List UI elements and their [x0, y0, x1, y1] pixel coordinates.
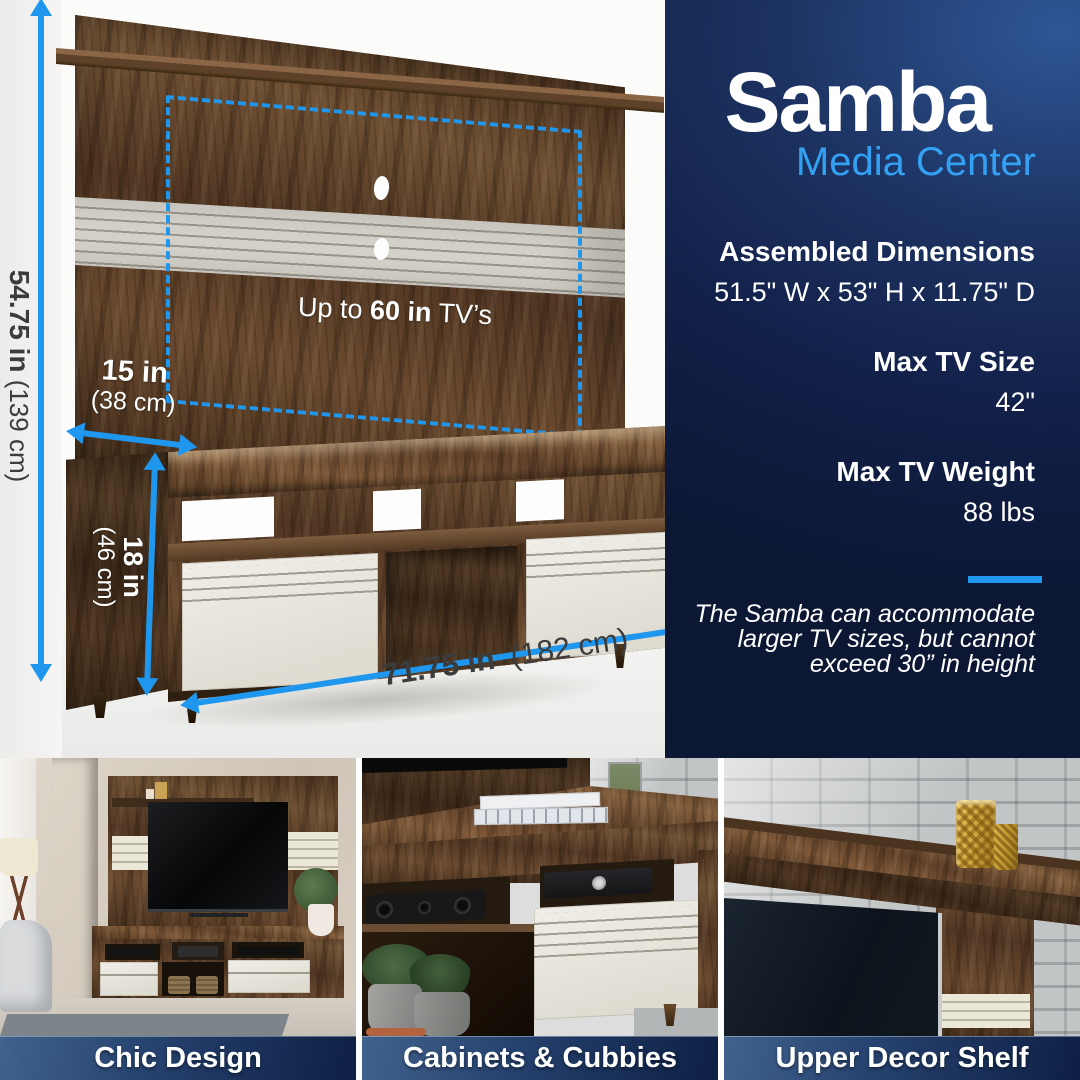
height-cm: (139 cm) — [4, 380, 34, 483]
spec-max-tv-weight: Max TV Weight 88 lbs — [836, 456, 1035, 528]
note-line: exceed 30” in height — [695, 652, 1035, 677]
stand-height-cm: (46 cm) — [91, 507, 118, 627]
closeup-floor — [634, 1008, 718, 1036]
cubby-opening-left — [182, 496, 274, 541]
spec-label: Max TV Size — [873, 346, 1035, 378]
book — [474, 807, 608, 825]
tv-stand-bar — [190, 913, 248, 917]
cubby-opening-middle — [373, 489, 421, 532]
spec-label: Max TV Weight — [836, 456, 1035, 488]
hero-panel: Samba Media Center Assembled Dimensions … — [665, 0, 1080, 758]
photo-chic-design: Chic Design — [0, 758, 356, 1080]
tv-capacity-value: 60 in — [369, 295, 432, 328]
tv-capacity-prefix: Up to — [297, 292, 370, 325]
tv-screen — [148, 802, 288, 912]
caption-text: Upper Decor Shelf — [776, 1042, 1029, 1075]
player-knob — [592, 876, 606, 891]
drawer-grooves — [100, 965, 158, 977]
speaker-cone — [454, 897, 471, 915]
spec-max-tv-size: Max TV Size 42" — [873, 346, 1035, 418]
tv-size-note: The Samba can accommodate larger TV size… — [695, 602, 1035, 677]
outlet-strip — [178, 946, 218, 957]
pot-saucer — [366, 1028, 426, 1036]
product-subtitle: Media Center — [796, 140, 1036, 185]
drawer-grooves — [182, 559, 378, 609]
cubby-opening-right — [516, 479, 564, 522]
decor-candle — [155, 782, 167, 799]
top-depth-inches: 15 in — [84, 353, 186, 391]
mini-device — [108, 947, 156, 957]
height-label: 54.75 in (139 cm) — [0, 251, 35, 501]
infographic: Up to 60 in TV’s 54.75 in — [0, 0, 1080, 1080]
photo-upper-decor-shelf: Upper Decor Shelf — [724, 758, 1080, 1080]
spec-assembled-dimensions: Assembled Dimensions 51.5" W x 53" H x 1… — [714, 236, 1035, 308]
soundbar — [366, 889, 486, 925]
drawer-grooves — [228, 963, 310, 975]
tv-outline-dashed — [166, 95, 582, 438]
product-title: Samba — [725, 54, 990, 151]
basket — [196, 976, 218, 994]
spec-label: Assembled Dimensions — [714, 236, 1035, 268]
caption-text: Chic Design — [94, 1042, 262, 1075]
mini-drawer-left — [100, 962, 158, 996]
decor-candle — [146, 789, 154, 799]
gold-vase-small — [994, 824, 1018, 870]
stand-height-inches: 18 in — [118, 507, 148, 627]
spec-value: 42" — [873, 387, 1035, 418]
area-rug — [0, 1014, 289, 1036]
decor-panel-slats — [940, 994, 1030, 1028]
spec-value: 88 lbs — [836, 497, 1035, 528]
mini-slat-left — [112, 836, 152, 870]
mini-device — [238, 946, 300, 955]
photo-cabinets-cubbies: Cabinets & Cubbies — [362, 758, 718, 1080]
caption-cabinets-cubbies: Cabinets & Cubbies — [362, 1036, 718, 1080]
plant-vase — [308, 904, 334, 936]
mini-drawer-right — [228, 960, 310, 993]
height-inches: 54.75 in — [4, 270, 35, 373]
floor-lamp-shade — [0, 838, 38, 876]
speaker-cone — [418, 901, 431, 915]
speaker-cone — [376, 901, 393, 919]
closeup-drawer — [534, 899, 700, 1020]
caption-text: Cabinets & Cubbies — [403, 1042, 677, 1075]
interior-shelf-edge — [362, 924, 534, 932]
tv-capacity-suffix: TV’s — [431, 298, 493, 331]
top-depth-cm: (38 cm) — [82, 386, 183, 419]
stand-height-label: 18 in (46 cm) — [90, 507, 148, 627]
basket — [168, 976, 190, 994]
mini-stand-slab — [92, 926, 344, 939]
drawer-grooves — [526, 537, 676, 583]
armchair — [0, 920, 52, 1012]
caption-upper-decor-shelf: Upper Decor Shelf — [724, 1036, 1080, 1080]
drawer-grooves — [534, 905, 700, 958]
gold-vase-large — [956, 800, 996, 868]
accent-divider — [968, 576, 1042, 583]
caption-chic-design: Chic Design — [0, 1036, 356, 1080]
top-depth-label: 15 in (38 cm) — [82, 353, 185, 419]
height-arrow — [38, 14, 44, 666]
note-line: The Samba can accommodate — [695, 602, 1035, 627]
note-line: larger TV sizes, but cannot — [695, 627, 1035, 652]
spec-value: 51.5" W x 53" H x 11.75" D — [714, 277, 1035, 308]
product-diagram: Up to 60 in TV’s 54.75 in — [0, 0, 665, 758]
mini-slat-right — [288, 832, 338, 870]
